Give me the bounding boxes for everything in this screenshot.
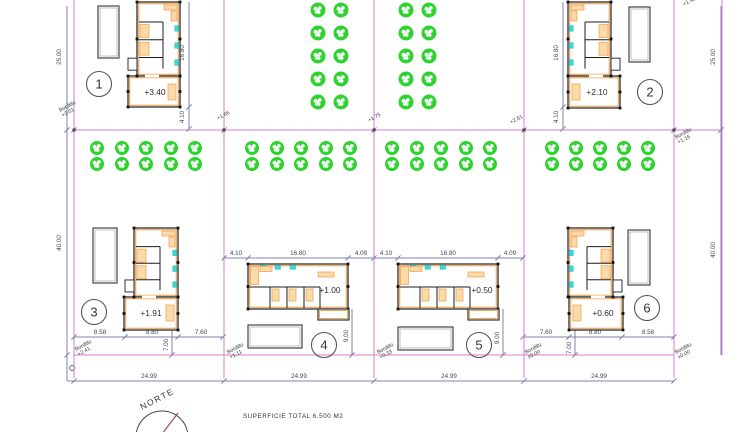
tree-detail (347, 165, 350, 168)
tree-detail (463, 165, 466, 168)
furniture (140, 42, 149, 55)
furniture (289, 289, 296, 301)
tree-detail (276, 147, 278, 149)
window-marker (569, 60, 573, 66)
wall-column (177, 312, 180, 315)
bordillo-label: +1.93 (682, 0, 697, 8)
wall-column (123, 296, 126, 299)
tree-detail (551, 147, 553, 149)
tree-detail (599, 147, 601, 149)
dimension-label: 4.10 (179, 110, 186, 123)
window-marker (175, 26, 179, 32)
tree-icon (343, 141, 357, 155)
wall-column (397, 308, 400, 311)
tree-detail (426, 11, 429, 14)
furniture (439, 289, 446, 301)
wall-column (177, 227, 180, 230)
tree-icon (617, 141, 631, 155)
tree-detail (251, 163, 253, 165)
furniture (571, 11, 577, 21)
tree-detail (94, 165, 97, 168)
furniture (599, 42, 608, 55)
dimension-label: 25.00 (56, 49, 63, 65)
tree-detail (391, 163, 393, 165)
tree-icon (410, 157, 424, 171)
window-marker (173, 250, 177, 256)
tree-detail (426, 34, 429, 37)
tree-detail (167, 145, 171, 149)
dimension-label: 25.00 (710, 49, 717, 65)
tree-detail (340, 9, 342, 11)
tree-detail (403, 11, 406, 14)
tree-detail (325, 163, 327, 165)
tree-detail (402, 53, 406, 57)
dimension-label: 16.80 (553, 45, 560, 61)
tree-icon (422, 72, 437, 87)
tree-detail (402, 30, 406, 34)
tree-detail (346, 161, 350, 165)
tree-detail (191, 145, 195, 149)
wall-column (136, 75, 139, 78)
wall-column (179, 90, 182, 93)
tree-detail (340, 78, 342, 80)
furniture (599, 24, 608, 37)
wall-column (567, 91, 570, 94)
wall-column (179, 1, 182, 4)
tree-detail (297, 145, 301, 149)
tree-icon (311, 49, 326, 64)
tree-detail (93, 145, 97, 149)
tree-detail (428, 32, 430, 34)
tree-detail (170, 163, 172, 165)
tree-detail (317, 55, 319, 57)
tree-icon (422, 26, 437, 41)
tree-icon (641, 141, 655, 155)
tree-detail (298, 149, 301, 152)
tree-detail (391, 147, 393, 149)
wall-column (622, 329, 625, 332)
window-marker (275, 265, 281, 269)
tree-detail (572, 145, 576, 149)
entry-step (125, 280, 134, 292)
furniture (572, 84, 580, 100)
dimension-label: 4.10 (553, 110, 560, 123)
tree-icon (164, 157, 178, 171)
tree-detail (548, 145, 552, 149)
tree-icon (90, 157, 104, 171)
dimension-label: 40.00 (710, 242, 717, 258)
tree-detail (428, 78, 430, 80)
wall-column (247, 308, 250, 311)
dimension-label: 16.80 (440, 250, 456, 257)
wall-column (179, 106, 182, 109)
tree-detail (119, 165, 122, 168)
furniture (171, 11, 177, 21)
furniture (318, 272, 334, 277)
dimension-label: 24.99 (441, 373, 457, 380)
wall-column (610, 1, 613, 4)
dimension-label: 8.58 (642, 329, 655, 336)
tree-icon (334, 3, 349, 18)
wall-column (619, 75, 622, 78)
tree-detail (297, 161, 301, 165)
tree-detail (191, 161, 195, 165)
tree-icon (385, 141, 399, 155)
tree-icon (617, 157, 631, 171)
tree-icon (422, 49, 437, 64)
wall-column (612, 227, 615, 230)
bordillo-label: +2.61 (509, 114, 524, 126)
tree-detail (337, 7, 341, 11)
tree-icon (334, 26, 349, 41)
plot-number: 6 (643, 301, 650, 316)
wall-column (567, 107, 570, 110)
tree-icon (410, 141, 424, 155)
tree-detail (465, 163, 467, 165)
furniture (162, 231, 175, 236)
tree-detail (388, 161, 392, 165)
tree-icon (319, 157, 333, 171)
tree-detail (416, 147, 418, 149)
tree-detail (93, 161, 97, 165)
survey-marker (70, 366, 75, 371)
tree-detail (549, 149, 552, 152)
tree-detail (168, 149, 171, 152)
tree-detail (405, 32, 407, 34)
tree-detail (315, 34, 318, 37)
tree-detail (170, 147, 172, 149)
window-marker (569, 43, 573, 49)
tree-detail (438, 165, 441, 168)
wall-column (619, 107, 622, 110)
wall-column (127, 90, 130, 93)
dimension-label: 24.99 (291, 373, 307, 380)
tree-detail (96, 163, 98, 165)
furniture (272, 289, 279, 301)
tree-detail (338, 57, 341, 60)
tree-detail (647, 163, 649, 165)
tree-detail (403, 34, 406, 37)
tree-icon (294, 141, 308, 155)
wall-column (619, 91, 622, 94)
elevation-label: +0.60 (592, 308, 614, 318)
wall-column (567, 227, 570, 230)
tree-icon (90, 141, 104, 155)
tree-detail (167, 161, 171, 165)
tree-detail (572, 161, 576, 165)
tree-detail (249, 149, 252, 152)
wall-column (123, 329, 126, 332)
tree-detail (340, 55, 342, 57)
elevation-label: +0.50 (471, 285, 493, 295)
tree-detail (428, 101, 430, 103)
pool (93, 228, 117, 283)
tree-detail (402, 7, 406, 11)
window-marker (425, 265, 431, 269)
tree-icon (641, 157, 655, 171)
north-label: NORTE (138, 386, 176, 412)
tree-detail (620, 145, 624, 149)
tree-detail (489, 163, 491, 165)
tree-detail (405, 9, 407, 11)
furniture (601, 266, 610, 279)
tree-detail (340, 32, 342, 34)
window-marker (569, 282, 573, 288)
wall-column (397, 263, 400, 266)
wall-column (567, 1, 570, 4)
dimension-label: 16.80 (290, 250, 306, 257)
tree-detail (142, 161, 146, 165)
window-marker (175, 43, 179, 49)
node-dot (73, 129, 76, 132)
tree-detail (486, 145, 490, 149)
tree-detail (413, 145, 417, 149)
tree-detail (623, 163, 625, 165)
tree-icon (343, 157, 357, 171)
tree-icon (459, 157, 473, 171)
tree-detail (273, 145, 277, 149)
node-dot (223, 129, 226, 132)
bordillo-label: Bordillo+0.33 (376, 342, 397, 361)
tree-detail (249, 165, 252, 168)
tree-detail (425, 7, 429, 11)
tree-detail (645, 165, 648, 168)
furniture (166, 305, 174, 321)
wall-column (397, 285, 400, 288)
wall-column (133, 261, 136, 264)
wall-column (123, 312, 126, 315)
tree-icon (483, 157, 497, 171)
dimension-label: 4.10 (380, 250, 393, 257)
north-arrow (146, 413, 178, 432)
tree-detail (96, 147, 98, 149)
tree-detail (644, 161, 648, 165)
tree-icon (434, 141, 448, 155)
tree-detail (645, 149, 648, 152)
tree-detail (337, 76, 341, 80)
tree-detail (194, 163, 196, 165)
tree-detail (192, 149, 195, 152)
dimension-label: 24.99 (591, 373, 607, 380)
tree-detail (405, 101, 407, 103)
tree-detail (414, 149, 417, 152)
tree-detail (300, 163, 302, 165)
tree-detail (426, 80, 429, 83)
tree-detail (325, 147, 327, 149)
wall-column (497, 285, 500, 288)
tree-detail (317, 9, 319, 11)
tree-detail (314, 99, 318, 103)
window-marker (569, 250, 573, 256)
north-circle (136, 411, 188, 432)
wall-column (622, 296, 625, 299)
tree-detail (597, 165, 600, 168)
furniture (410, 267, 422, 272)
tree-icon (483, 141, 497, 155)
tree-detail (142, 145, 146, 149)
tree-detail (647, 147, 649, 149)
tree-detail (416, 163, 418, 165)
bordillo-label: +1.75 (367, 112, 382, 124)
tree-detail (314, 76, 318, 80)
wall-column (177, 261, 180, 264)
tree-detail (549, 165, 552, 168)
tree-detail (428, 9, 430, 11)
tree-detail (337, 53, 341, 57)
pool (248, 325, 302, 348)
tree-icon (334, 95, 349, 110)
tree-icon (399, 49, 414, 64)
superficie-note: SUPERFICIE TOTAL 6.500 M2 (243, 413, 343, 420)
window-marker (173, 282, 177, 288)
wall-column (179, 38, 182, 41)
plot-number: 4 (320, 338, 327, 353)
tree-icon (334, 72, 349, 87)
tree-detail (315, 80, 318, 83)
dimension-label: 4.09 (504, 250, 517, 257)
window-marker (290, 265, 296, 269)
node-dot (523, 129, 526, 132)
dimension-label: 7.60 (540, 329, 553, 336)
bordillo-label: Bordillo±0.00 (524, 342, 545, 361)
wall-column (177, 329, 180, 332)
tree-detail (314, 7, 318, 11)
tree-detail (274, 149, 277, 152)
wall-column (127, 75, 130, 78)
tree-detail (248, 145, 252, 149)
tree-detail (315, 103, 318, 106)
tree-detail (621, 165, 624, 168)
wall-column (567, 38, 570, 41)
tree-detail (462, 161, 466, 165)
furniture (468, 272, 484, 277)
tree-icon (434, 157, 448, 171)
dimension-label: 7.60 (195, 329, 208, 336)
tree-detail (621, 149, 624, 152)
tree-detail (192, 165, 195, 168)
window-marker (569, 26, 573, 32)
tree-icon (311, 95, 326, 110)
tree-detail (145, 163, 147, 165)
node-dot (673, 129, 676, 132)
furniture (306, 289, 313, 301)
tree-detail (143, 165, 146, 168)
tree-detail (388, 145, 392, 149)
wall-column (247, 263, 250, 266)
tree-detail (425, 99, 429, 103)
entry-step (611, 58, 620, 70)
tree-detail (298, 165, 301, 168)
tree-detail (347, 149, 350, 152)
dimension-label: 9.00 (494, 331, 501, 344)
tree-icon (294, 157, 308, 171)
tree-detail (143, 149, 146, 152)
wall-column (567, 75, 570, 78)
tree-icon (399, 3, 414, 18)
dimension-label: 24.99 (141, 373, 157, 380)
furniture (571, 237, 577, 247)
tree-detail (274, 165, 277, 168)
tree-detail (121, 163, 123, 165)
furniture (260, 267, 272, 272)
wall-column (136, 1, 139, 4)
tree-detail (403, 80, 406, 83)
tree-detail (194, 147, 196, 149)
tree-detail (338, 34, 341, 37)
tree-detail (620, 161, 624, 165)
tree-icon (245, 141, 259, 155)
tree-detail (145, 147, 147, 149)
tree-detail (248, 161, 252, 165)
wall-column (610, 75, 613, 78)
tree-detail (426, 103, 429, 106)
dimension-label: 4.10 (230, 250, 243, 257)
tree-detail (276, 163, 278, 165)
furniture (169, 237, 175, 247)
tree-icon (115, 157, 129, 171)
tree-detail (489, 147, 491, 149)
wall-column (497, 263, 500, 266)
furniture (137, 266, 146, 279)
tree-detail (463, 149, 466, 152)
tree-icon (270, 141, 284, 155)
tree-detail (440, 147, 442, 149)
bordillo-label: Bordillo+1.11 (226, 342, 247, 361)
tree-detail (465, 147, 467, 149)
furniture (422, 289, 429, 301)
tree-icon (188, 141, 202, 155)
tree-detail (487, 165, 490, 168)
dimension-label: 7.00 (163, 338, 170, 351)
tree-detail (118, 145, 122, 149)
wall-column (136, 38, 139, 41)
tree-detail (322, 161, 326, 165)
entry-step (128, 58, 137, 70)
tree-detail (573, 149, 576, 152)
tree-detail (338, 103, 341, 106)
wall-column (567, 261, 570, 264)
tree-icon (399, 72, 414, 87)
tree-detail (599, 163, 601, 165)
tree-icon (385, 157, 399, 171)
tree-detail (349, 147, 351, 149)
tree-detail (438, 149, 441, 152)
tree-detail (551, 163, 553, 165)
tree-detail (428, 55, 430, 57)
wall-column (247, 285, 250, 288)
elevation-label: +1.91 (140, 308, 162, 318)
site-plan-drawing: 25.0040.0025.0040.0016.804.1016.804.104.… (0, 0, 756, 432)
tree-detail (349, 163, 351, 165)
wall-column (568, 296, 571, 299)
tree-icon (569, 157, 583, 171)
tree-detail (575, 163, 577, 165)
wall-column (568, 312, 571, 315)
site-plan: 25.0040.0025.0040.0016.804.1016.804.104.… (0, 0, 756, 432)
tree-icon (545, 157, 559, 171)
tree-detail (322, 145, 326, 149)
tree-detail (405, 78, 407, 80)
tree-detail (596, 145, 600, 149)
tree-detail (119, 149, 122, 152)
tree-icon (139, 141, 153, 155)
tree-detail (402, 76, 406, 80)
tree-detail (403, 57, 406, 60)
bordillo-label: Bordillo+3.01 (58, 100, 79, 119)
tree-detail (425, 53, 429, 57)
bordillo-label: Bordillo±0.00 (674, 342, 695, 361)
furniture (571, 5, 584, 10)
